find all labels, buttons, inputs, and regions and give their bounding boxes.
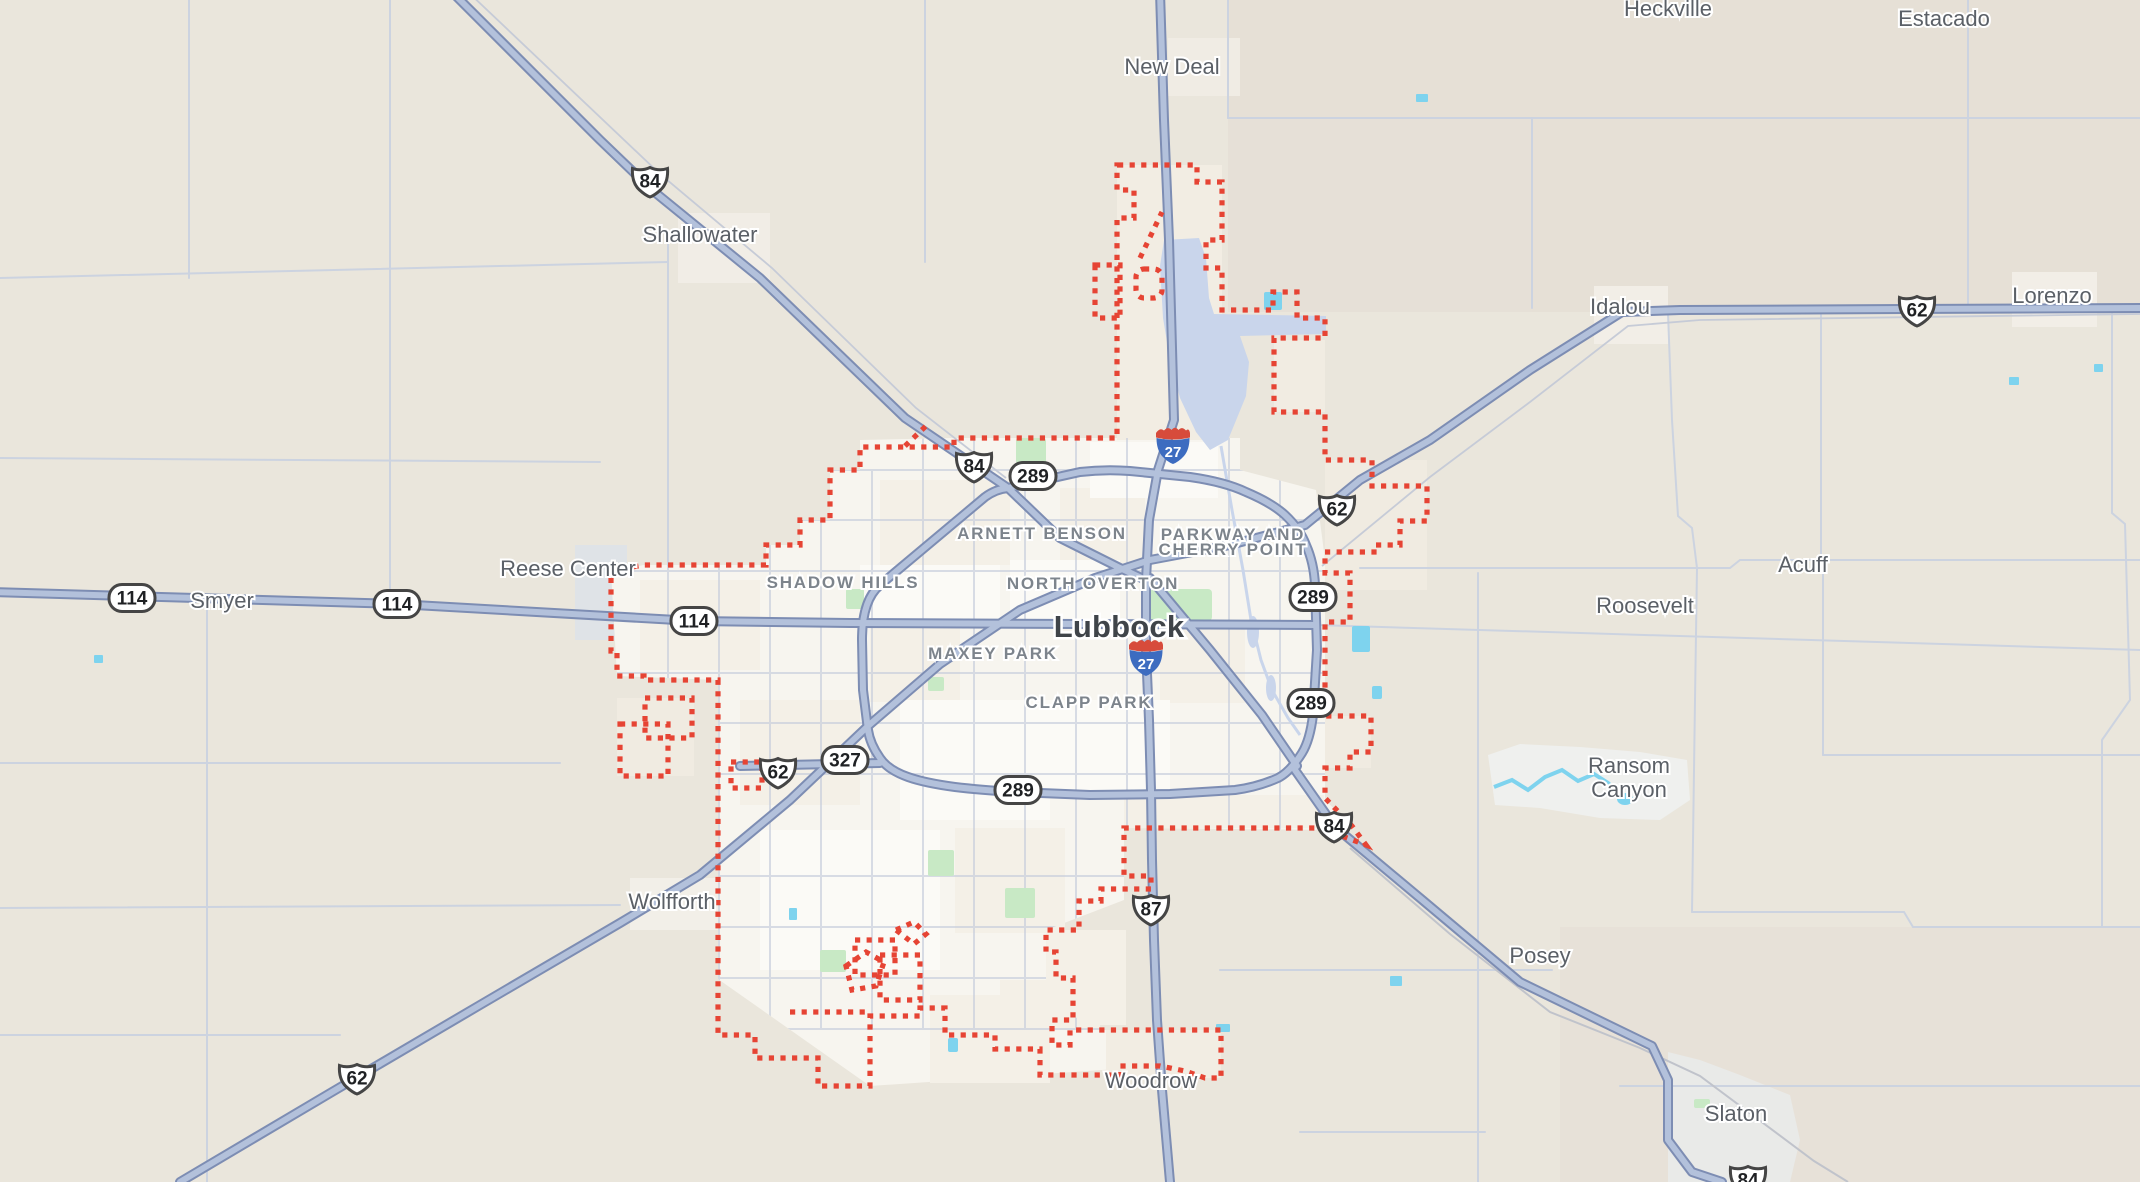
- svg-text:62: 62: [1906, 301, 1927, 322]
- svg-text:87: 87: [1140, 900, 1161, 921]
- svg-text:62: 62: [1326, 500, 1347, 521]
- svg-text:289: 289: [1002, 781, 1034, 802]
- svg-text:62: 62: [346, 1069, 367, 1090]
- svg-text:Lorenzo: Lorenzo: [2012, 283, 2092, 308]
- svg-text:Woodrow: Woodrow: [1105, 1068, 1198, 1093]
- svg-text:Slaton: Slaton: [1705, 1101, 1767, 1126]
- svg-text:CLAPP PARK: CLAPP PARK: [1026, 693, 1153, 712]
- svg-text:114: 114: [382, 595, 413, 616]
- svg-text:Idalou: Idalou: [1590, 294, 1650, 319]
- svg-text:Shallowater: Shallowater: [643, 222, 758, 247]
- svg-text:MAXEY PARK: MAXEY PARK: [928, 644, 1058, 663]
- svg-text:289: 289: [1295, 694, 1327, 715]
- svg-text:Posey: Posey: [1509, 943, 1570, 968]
- svg-text:Wolfforth: Wolfforth: [628, 889, 715, 914]
- svg-text:62: 62: [767, 763, 788, 784]
- svg-text:ARNETT BENSON: ARNETT BENSON: [957, 524, 1127, 543]
- svg-text:84: 84: [1737, 1171, 1759, 1182]
- svg-text:Estacado: Estacado: [1898, 6, 1990, 31]
- svg-text:114: 114: [117, 589, 148, 610]
- svg-text:114: 114: [679, 612, 710, 633]
- svg-text:327: 327: [829, 751, 861, 772]
- svg-text:NORTH OVERTON: NORTH OVERTON: [1007, 574, 1179, 593]
- svg-text:Reese Center: Reese Center: [500, 556, 636, 581]
- svg-text:CHERRY POINT: CHERRY POINT: [1158, 540, 1307, 559]
- svg-text:Ransom: Ransom: [1588, 753, 1670, 778]
- svg-text:289: 289: [1017, 467, 1049, 488]
- svg-text:84: 84: [1323, 817, 1345, 838]
- svg-text:SHADOW HILLS: SHADOW HILLS: [767, 573, 920, 592]
- svg-text:Acuff: Acuff: [1778, 552, 1829, 577]
- svg-text:Lubbock: Lubbock: [1054, 609, 1185, 644]
- svg-text:Heckville: Heckville: [1624, 0, 1712, 21]
- svg-text:Canyon: Canyon: [1591, 777, 1667, 802]
- svg-text:New Deal: New Deal: [1124, 54, 1219, 79]
- svg-text:Smyer: Smyer: [190, 588, 254, 613]
- svg-text:289: 289: [1297, 588, 1329, 609]
- svg-text:84: 84: [963, 457, 985, 478]
- svg-text:Roosevelt: Roosevelt: [1596, 593, 1694, 618]
- svg-text:84: 84: [639, 172, 661, 193]
